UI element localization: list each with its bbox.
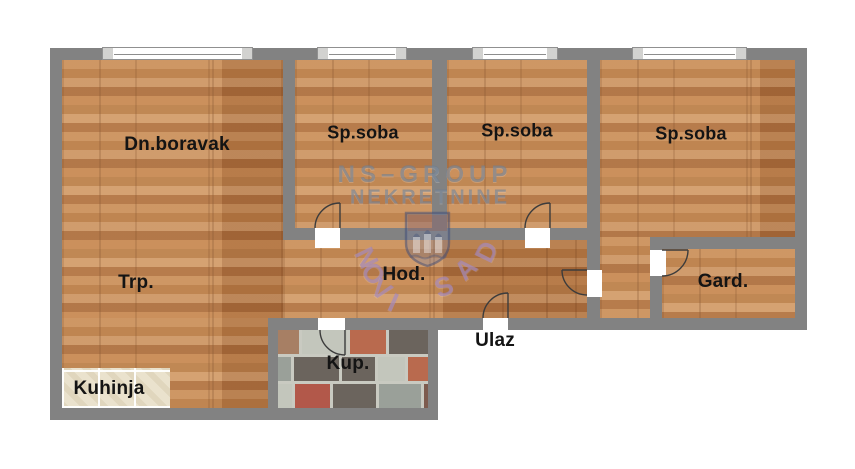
wall-living-bedroom1 bbox=[283, 60, 295, 240]
door-opening-bedroom-2 bbox=[525, 228, 550, 248]
wall-left bbox=[50, 48, 62, 420]
room-label-living-room: Dn.boravak bbox=[124, 134, 229, 156]
door-opening-bedroom-1 bbox=[315, 228, 340, 248]
bathroom-tile bbox=[278, 384, 292, 408]
apartment-floor-plan: NS–GROUP NEKRETNINE NOVISAD Dn.boravak S… bbox=[0, 0, 855, 469]
door-opening-bathroom bbox=[318, 318, 345, 330]
room-label-bedroom-2: Sp.soba bbox=[481, 121, 552, 142]
bathroom-tile bbox=[302, 330, 347, 354]
bathroom-tile bbox=[333, 384, 376, 408]
room-label-bedroom-3: Sp.soba bbox=[655, 124, 726, 145]
floor-bedroom-3 bbox=[600, 60, 795, 237]
wall-bottom-right bbox=[268, 318, 807, 330]
door-opening-entrance bbox=[483, 318, 508, 330]
door-opening-vestibule bbox=[587, 270, 602, 297]
watermark-agency-sub: NEKRETNINE bbox=[350, 187, 510, 210]
window-bedroom-3 bbox=[632, 47, 747, 60]
window-bedroom-1 bbox=[317, 47, 407, 60]
bathroom-tile bbox=[295, 384, 330, 408]
bathroom-tile bbox=[379, 384, 421, 408]
room-label-hallway: Hod. bbox=[382, 264, 425, 286]
door-opening-wardrobe bbox=[650, 250, 666, 276]
bathroom-tile bbox=[408, 357, 428, 381]
floor-living-room bbox=[62, 60, 283, 318]
wall-bathroom-left bbox=[268, 318, 278, 420]
room-label-kitchen: Kuhinja bbox=[73, 378, 144, 400]
bathroom-tile bbox=[278, 330, 299, 354]
window-living-room bbox=[102, 47, 253, 60]
room-label-bedroom-1: Sp.soba bbox=[327, 123, 398, 144]
room-label-wardrobe: Gard. bbox=[698, 271, 749, 293]
room-label-dining: Trp. bbox=[118, 272, 154, 294]
watermark-agency-name: NS–GROUP bbox=[338, 161, 513, 189]
room-label-entrance: Ulaz bbox=[475, 330, 515, 352]
novi-sad-coat-of-arms-icon bbox=[403, 211, 452, 268]
bathroom-tile bbox=[278, 357, 291, 381]
wall-bathroom-right bbox=[428, 318, 438, 420]
wall-bottom-left bbox=[50, 408, 438, 420]
wall-bedroom3-wardrobe bbox=[650, 237, 795, 249]
window-bedroom-2 bbox=[472, 47, 558, 60]
bathroom-tile bbox=[350, 330, 386, 354]
floor-vestibule bbox=[600, 237, 650, 318]
room-label-bathroom: Kup. bbox=[326, 353, 369, 375]
wall-right bbox=[795, 48, 807, 330]
bathroom-tile bbox=[378, 357, 405, 381]
bathroom-tile bbox=[389, 330, 428, 354]
